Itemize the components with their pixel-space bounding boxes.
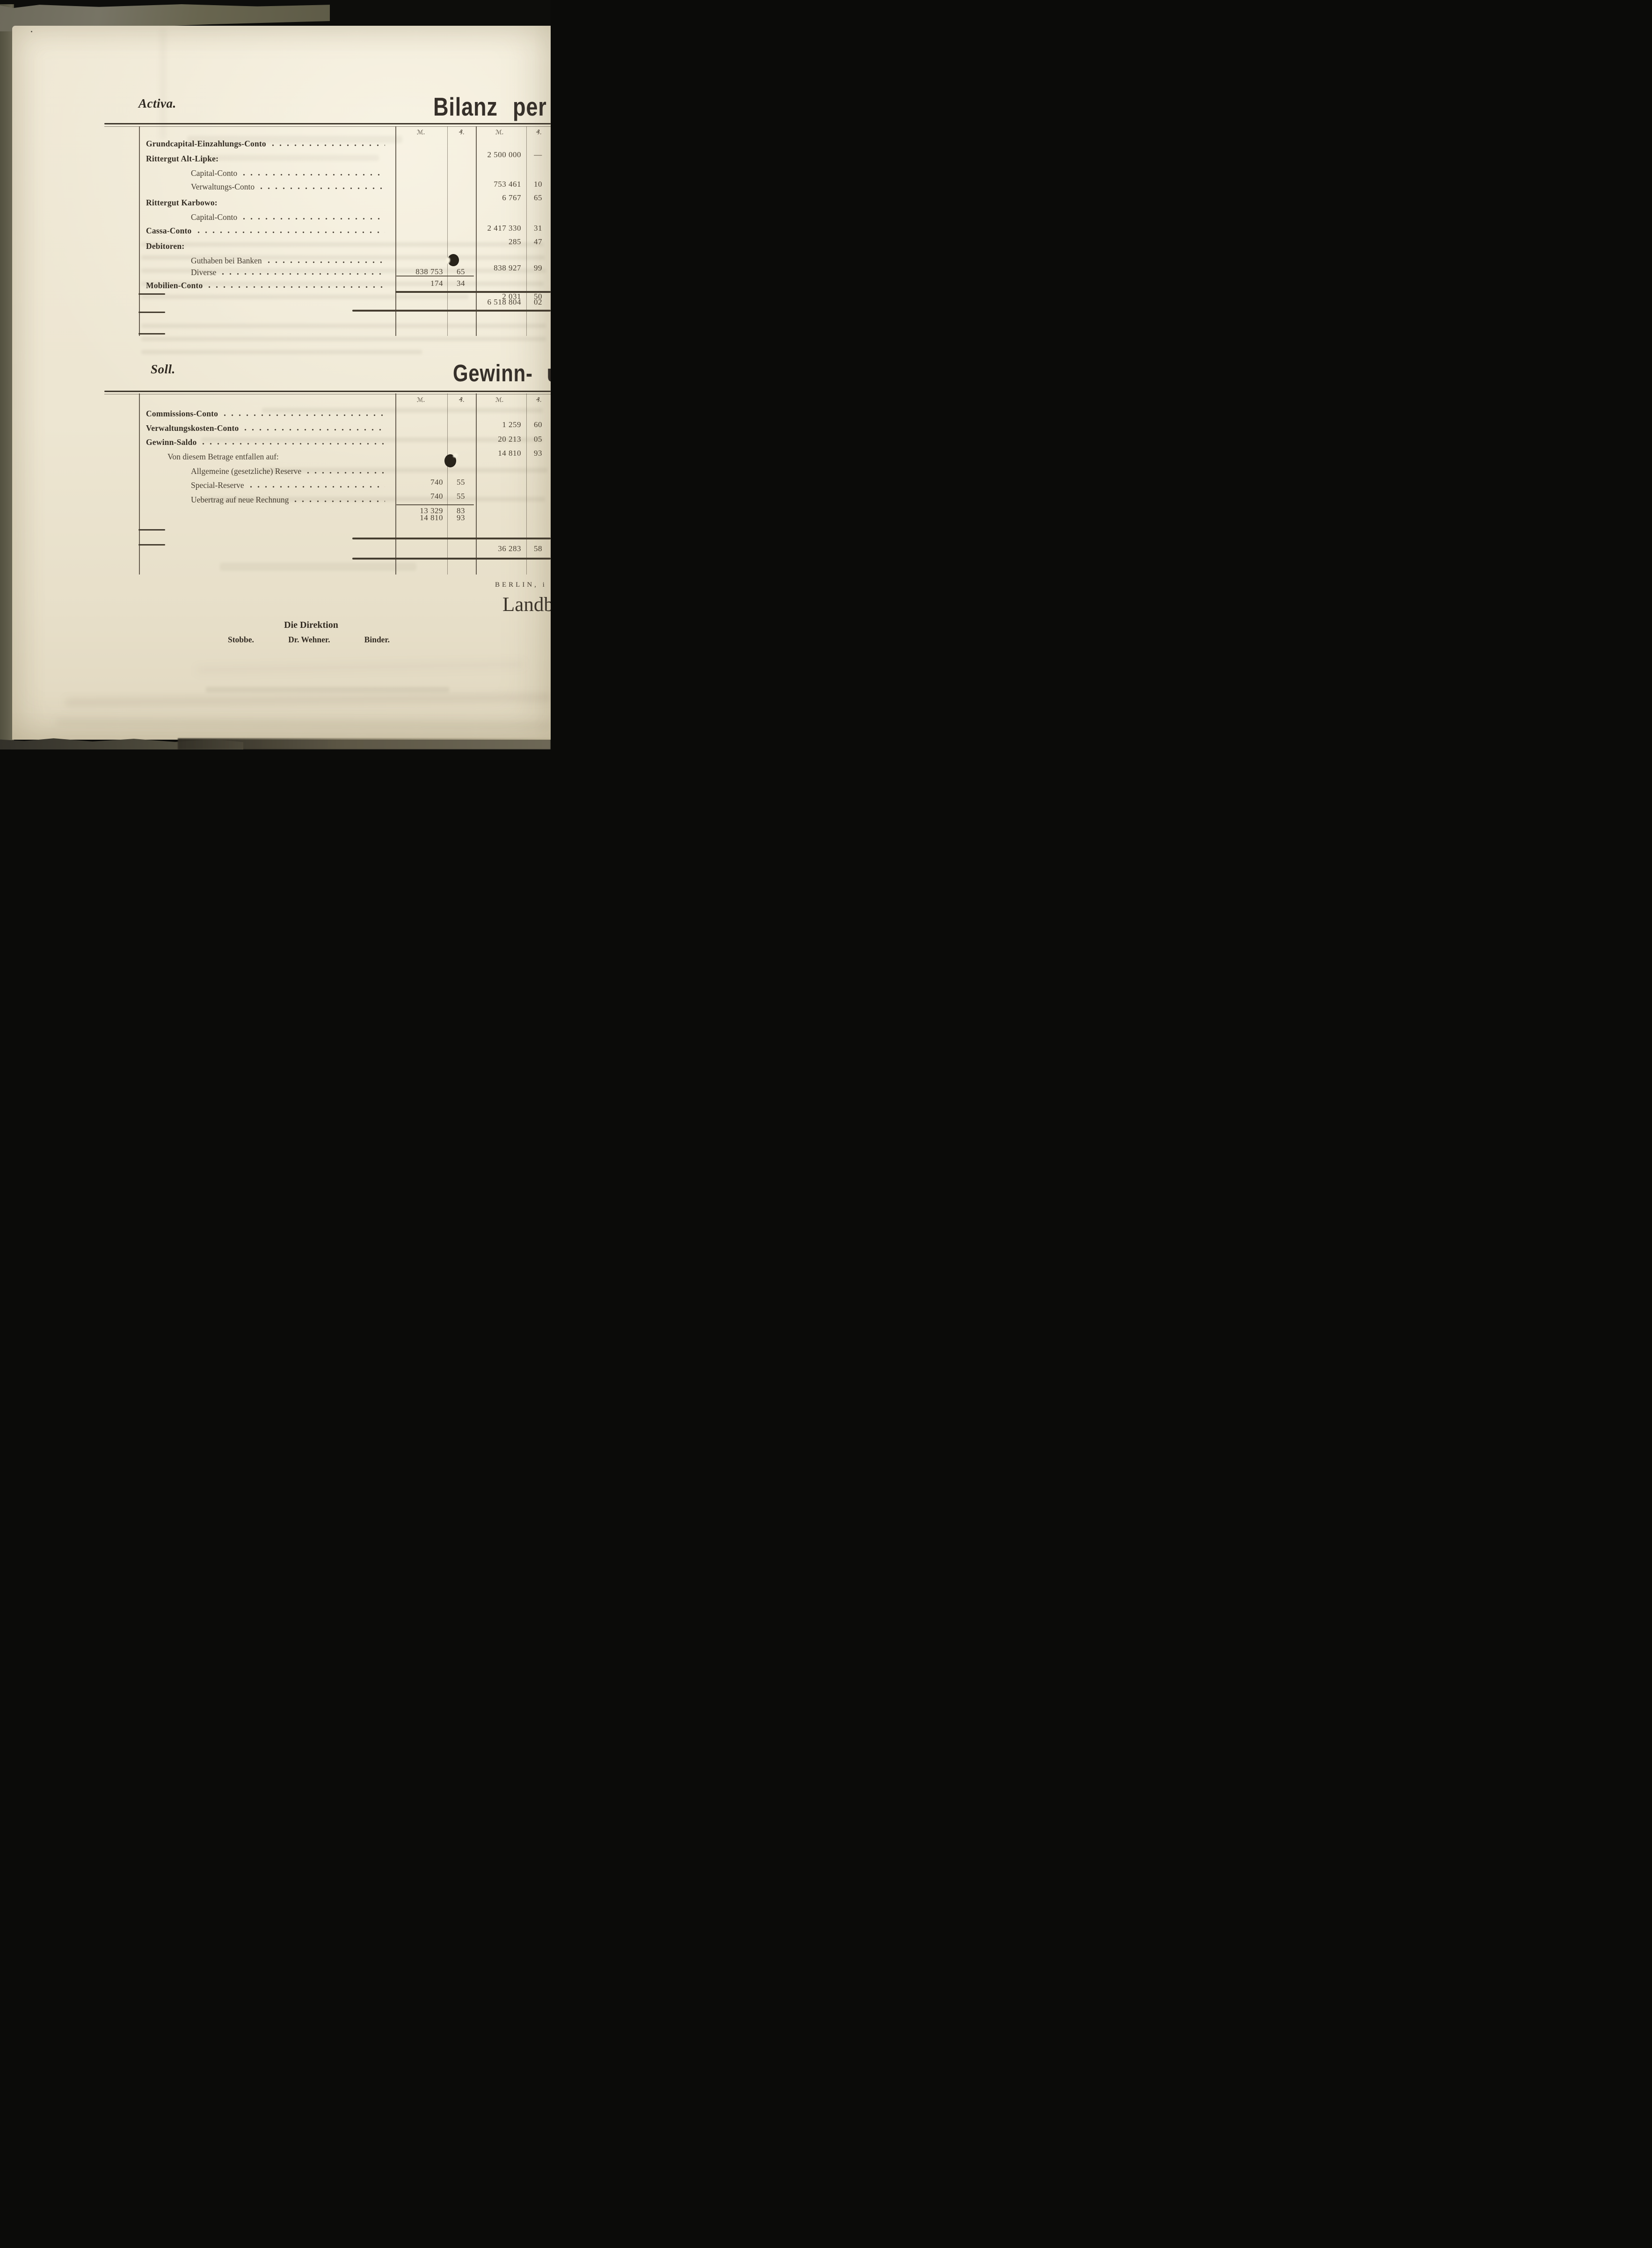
column-header-mark: ℳ.	[486, 397, 514, 404]
table-row: Verwaltungskosten-Conto20 21305	[0, 422, 551, 434]
row-label-line: Guthaben bei Banken	[0, 255, 551, 266]
closing-rule-stub	[138, 312, 165, 313]
closing-rule	[352, 538, 551, 539]
bleedthrough-smudge	[141, 337, 546, 341]
scanned-balance-sheet-page: Activa. Bilanz per 31. Soll. Gewinn- und…	[0, 0, 551, 749]
amount-mark-total: 6 518 804	[474, 297, 523, 308]
amount-pfennig-total: 58	[527, 543, 549, 554]
table-row: Grundcapital-Einzahlungs-Conto2 500 000—	[0, 138, 551, 149]
bleedthrough-smudge	[141, 324, 546, 328]
closing-rule-stub	[138, 293, 165, 295]
row-label-line: Debitoren:	[0, 240, 551, 252]
account-label: Diverse	[191, 267, 216, 278]
table-row: Rittergut Karbowo:	[0, 197, 551, 208]
bleedthrough-smudge	[220, 563, 416, 571]
row-label-line: Allgemeine (gesetzliche) Reserve	[0, 466, 551, 477]
bleedthrough-smudge	[141, 350, 422, 354]
dot-leader	[197, 231, 386, 234]
row-label-line: Von diesem Betrage entfallen auf:	[0, 451, 551, 462]
direktion-heading: Die Direktion	[243, 620, 379, 631]
row-label-line: Commissions-Conto	[0, 408, 551, 419]
table-row: Capital-Conto753 46110	[0, 167, 551, 179]
column-header-mark: ℳ.	[486, 129, 514, 136]
landbank-heading-clipped: Landb	[502, 593, 551, 618]
row-label-line: Verwaltungs-Conto	[0, 181, 551, 192]
paper-speck	[31, 31, 32, 32]
column-header-pfennig: ₰.	[525, 397, 551, 404]
column-header-pfennig: ₰.	[448, 397, 476, 404]
account-label: Von diesem Betrage entfallen auf:	[167, 451, 279, 462]
column-header-mark: ℳ.	[407, 397, 435, 404]
account-label: Rittergut Alt-Lipke:	[146, 153, 218, 164]
account-label: Commissions-Conto	[146, 408, 218, 419]
punch-hole	[448, 254, 459, 266]
account-label: Grundcapital-Einzahlungs-Conto	[146, 138, 266, 149]
closing-rule	[352, 558, 551, 560]
row-label-line: Cassa-Conto	[0, 225, 551, 236]
table-row: Cassa-Conto28547	[0, 225, 551, 236]
closing-rule-stub	[138, 529, 165, 531]
account-label: Cassa-Conto	[146, 225, 192, 236]
closing-rule-stub	[138, 333, 165, 335]
punch-hole	[444, 454, 456, 467]
dot-leader	[244, 428, 385, 431]
row-label-line: Capital-Conto	[0, 167, 551, 179]
account-label: Capital-Conto	[191, 167, 237, 179]
account-label: Gewinn-Saldo	[146, 437, 196, 448]
amount-pfennig-total: 99	[527, 262, 549, 274]
row-label-line: Uebertrag auf neue Rechnung	[0, 494, 551, 505]
table-rule	[104, 126, 551, 127]
sum-line	[396, 504, 474, 505]
amount-mark-total: 36 283	[474, 543, 523, 554]
activa-heading: Activa.	[138, 96, 176, 111]
dot-leader	[224, 414, 385, 417]
signature-name: Binder.	[364, 635, 390, 645]
signature-name: Dr. Wehner.	[288, 635, 330, 645]
row-label-line: Grundcapital-Einzahlungs-Conto	[0, 138, 551, 149]
table-row: Debitoren:	[0, 240, 551, 252]
table-total-row: 6 518 80402	[0, 297, 551, 308]
column-header-pfennig: ₰.	[448, 129, 476, 136]
dot-leader	[243, 173, 385, 176]
table-rule	[104, 394, 551, 394]
row-label-line: Special-Reserve	[0, 480, 551, 491]
dot-leader	[307, 471, 385, 474]
account-label: Uebertrag auf neue Rechnung	[191, 494, 289, 505]
dot-leader	[208, 285, 385, 289]
table-row: 14 81093	[0, 512, 551, 524]
account-label: Mobilien-Conto	[146, 280, 203, 291]
account-label: Allgemeine (gesetzliche) Reserve	[191, 466, 301, 477]
table-row: Von diesem Betrage entfallen auf:	[0, 451, 551, 462]
row-label-line: Rittergut Karbowo:	[0, 197, 551, 208]
row-label-line: Verwaltungskosten-Conto	[0, 422, 551, 434]
amount-pfennig-total: 02	[527, 297, 549, 308]
dot-leader	[222, 272, 385, 276]
dot-leader	[243, 217, 385, 220]
table-row: Guthaben bei Banken838 75365	[0, 255, 551, 266]
account-label: Rittergut Karbowo:	[146, 197, 218, 208]
sum-line	[396, 276, 474, 276]
table-rule	[104, 123, 551, 124]
signature-line: Stobbe. Dr. Wehner. Binder.	[228, 635, 390, 645]
paper-edge-shadow	[178, 738, 551, 749]
closing-rule-stub	[138, 544, 165, 546]
dot-leader	[202, 442, 385, 445]
table-row: Allgemeine (gesetzliche) Reserve74055	[0, 466, 551, 477]
account-label: Verwaltungs-Conto	[191, 181, 255, 192]
account-label: Debitoren:	[146, 240, 184, 252]
gewinn-title: Gewinn- und	[453, 359, 551, 387]
table-row: Mobilien-Conto2 03150	[0, 280, 551, 291]
paper-crease	[161, 29, 165, 139]
amount-mark-total: 838 927	[474, 262, 523, 274]
closing-rule	[395, 291, 551, 293]
closing-rule	[352, 310, 551, 312]
row-label-line: Gewinn-Saldo	[0, 437, 551, 448]
table-rule	[104, 391, 551, 392]
account-label: Capital-Conto	[191, 211, 237, 223]
dot-leader	[294, 500, 385, 503]
dot-leader	[272, 144, 385, 147]
account-label: Verwaltungskosten-Conto	[146, 422, 239, 434]
bilanz-title: Bilanz per 31.	[433, 92, 551, 122]
bleedthrough-smudge	[206, 687, 449, 692]
row-label-line: Capital-Conto	[0, 211, 551, 223]
table-row: Rittergut Alt-Lipke:	[0, 153, 551, 164]
table-row: Verwaltungs-Conto6 76765	[0, 181, 551, 192]
table-row: Gewinn-Saldo14 81093	[0, 437, 551, 448]
soll-heading: Soll.	[151, 362, 175, 377]
amount-pfennig-sub: 93	[448, 512, 473, 524]
table-row: Commissions-Conto1 25960	[0, 408, 551, 419]
landbank-heading-text: Landb	[502, 594, 551, 616]
dot-leader	[268, 261, 385, 264]
account-label: Special-Reserve	[191, 480, 244, 491]
row-label-line: Rittergut Alt-Lipke:	[0, 153, 551, 164]
table-total-row: 36 28358	[0, 543, 551, 554]
table-row: Uebertrag auf neue Rechnung13 32983	[0, 494, 551, 505]
column-header-pfennig: ₰.	[525, 129, 551, 136]
column-header-mark: ℳ.	[407, 129, 435, 136]
amount-mark-sub: 14 810	[395, 512, 450, 524]
row-label-line: Mobilien-Conto	[0, 280, 551, 291]
dot-leader	[250, 485, 385, 488]
dot-leader	[260, 187, 385, 190]
table-row: Capital-Conto2 417 33031	[0, 211, 551, 223]
account-label: Guthaben bei Banken	[191, 255, 262, 266]
table-row: Special-Reserve74055	[0, 480, 551, 491]
signature-name: Stobbe.	[228, 635, 254, 645]
berlin-dateline: BERLIN, i	[495, 581, 547, 589]
